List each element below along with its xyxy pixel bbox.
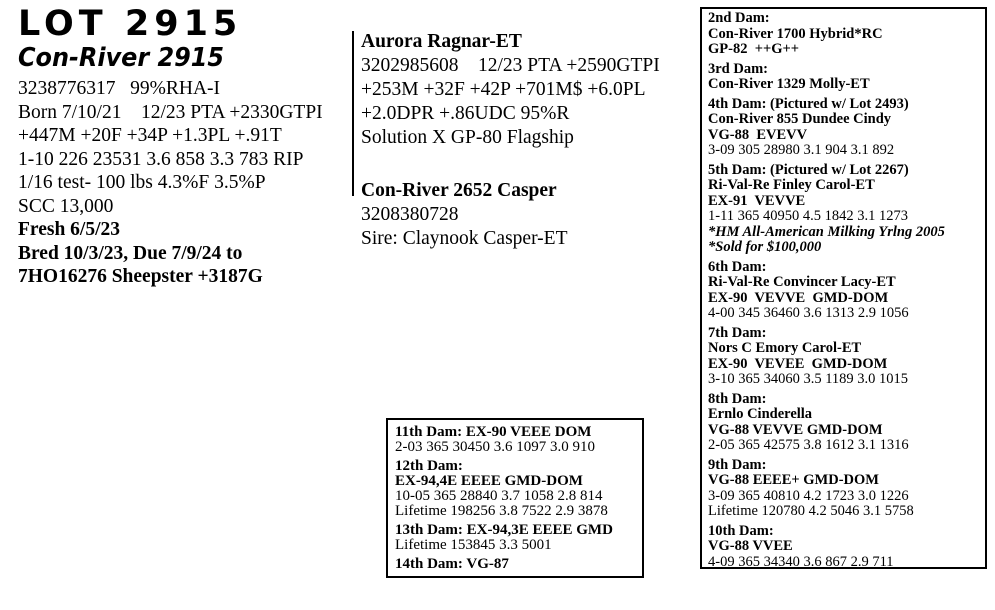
dam-score: VG-88 VEVVE GMD-DOM [708, 423, 979, 439]
dam-entry-14th: 14th Dam: VG-87 [395, 557, 635, 572]
dam-name: Con-River 1700 Hybrid*RC [708, 27, 979, 43]
dam-name: Con-River 2652 Casper [361, 179, 691, 203]
sire-pedigree-line: Solution X GP-80 Flagship [361, 126, 691, 150]
sire-fitness-line: +2.0DPR +.86UDC 95%R [361, 102, 691, 126]
dam-lifetime: Lifetime 153845 3.3 5001 [395, 538, 635, 553]
registration-line: 3238776317 99%RHA-I [18, 77, 353, 101]
extended-maternal-box: 11th Dam: EX-90 VEEE DOM 2-03 365 30450 … [386, 418, 644, 578]
sire-name: Aurora Ragnar-ET [361, 30, 691, 54]
dam-heading: 12th Dam: [395, 459, 635, 474]
dam-record: 4-00 345 36460 3.6 1313 2.9 1056 [708, 306, 979, 322]
dam-score: EX-94,4E EEEE GMD-DOM [395, 474, 635, 489]
dam-heading: 2nd Dam: [708, 11, 979, 27]
dam-name: Ernlo Cinderella [708, 407, 979, 423]
dam-name: Nors C Emory Carol-ET [708, 341, 979, 357]
dam-record: 3-10 365 34060 3.5 1189 3.0 1015 [708, 372, 979, 388]
sire-registration-pta-line: 3202985608 12/23 PTA +2590GTPI [361, 54, 691, 78]
pedigree-section: Aurora Ragnar-ET 3202985608 12/23 PTA +2… [361, 30, 691, 251]
dam-block: Con-River 2652 Casper 3208380728 Sire: C… [361, 179, 691, 251]
dam-name: Con-River 1329 Molly-ET [708, 77, 979, 93]
dam-score: EX-90 VEVVE GMD-DOM [708, 291, 979, 307]
pedigree-rule [352, 31, 354, 196]
dam-heading: 13th Dam: EX-94,3E EEEE GMD [395, 523, 635, 538]
dam-record: 1-11 365 40950 4.5 1842 3.1 1273 [708, 209, 979, 225]
sire-components-line: +253M +32F +42P +701M$ +6.0PL [361, 78, 691, 102]
dam-name: Ri-Val-Re Convincer Lacy-ET [708, 275, 979, 291]
dam-record: 3-09 305 28980 3.1 904 3.1 892 [708, 143, 979, 159]
dam-entry-3rd: 3rd Dam: Con-River 1329 Molly-ET [708, 62, 979, 93]
dam-lifetime: Lifetime 120780 4.2 5046 3.1 5758 [708, 504, 979, 520]
lactation-record-line: 1-10 226 23531 3.6 858 3.3 783 RIP [18, 148, 353, 172]
dam-heading: 8th Dam: [708, 392, 979, 408]
animal-details: 3238776317 99%RHA-I Born 7/10/21 12/23 P… [18, 77, 353, 289]
dam-score: EX-90 VEVEE GMD-DOM [708, 357, 979, 373]
dam-entry-9th: 9th Dam: VG-88 EEEE+ GMD-DOM 3-09 365 40… [708, 458, 979, 520]
dam-sire-line: Sire: Claynook Casper-ET [361, 227, 691, 251]
dam-entry-11th: 11th Dam: EX-90 VEEE DOM 2-03 365 30450 … [395, 425, 635, 455]
dam-lifetime: Lifetime 198256 3.8 7522 2.9 3878 [395, 504, 635, 519]
dam-entry-5th: 5th Dam: (Pictured w/ Lot 2267) Ri-Val-R… [708, 163, 979, 256]
dam-entry-2nd: 2nd Dam: Con-River 1700 Hybrid*RC GP-82 … [708, 11, 979, 58]
dam-score: GP-82 ++G++ [708, 42, 979, 58]
dam-entry-8th: 8th Dam: Ernlo Cinderella VG-88 VEVVE GM… [708, 392, 979, 454]
dam-entry-7th: 7th Dam: Nors C Emory Carol-ET EX-90 VEV… [708, 326, 979, 388]
dam-name: Ri-Val-Re Finley Carol-ET [708, 178, 979, 194]
dam-record: 2-03 365 30450 3.6 1097 3.0 910 [395, 440, 635, 455]
dam-score: EX-91 VEVVE [708, 194, 979, 210]
dam-entry-4th: 4th Dam: (Pictured w/ Lot 2493) Con-Rive… [708, 97, 979, 159]
dam-record: 2-05 365 42575 3.8 1612 3.1 1316 [708, 438, 979, 454]
test-day-line: 1/16 test- 100 lbs 4.3%F 3.5%P [18, 171, 353, 195]
dam-entry-6th: 6th Dam: Ri-Val-Re Convincer Lacy-ET EX-… [708, 260, 979, 322]
dam-record: 4-09 365 34340 3.6 867 2.9 711 [708, 555, 979, 570]
dam-score: VG-88 EEEE+ GMD-DOM [708, 473, 979, 489]
dam-heading: 5th Dam: (Pictured w/ Lot 2267) [708, 163, 979, 179]
service-sire-line: 7HO16276 Sheepster +3187G [18, 265, 353, 289]
dam-score: VG-88 VVEE [708, 539, 979, 555]
dam-heading: 6th Dam: [708, 260, 979, 276]
dam-sale-note: *Sold for $100,000 [708, 240, 979, 256]
dam-entry-13th: 13th Dam: EX-94,3E EEEE GMD Lifetime 153… [395, 523, 635, 553]
sale-catalog-page: LOT 2915 Con-River 2915 3238776317 99%RH… [0, 0, 995, 610]
dam-heading: 10th Dam: [708, 524, 979, 540]
dam-award-note: *HM All-American Milking Yrlng 2005 [708, 225, 979, 241]
maternal-line-box: 2nd Dam: Con-River 1700 Hybrid*RC GP-82 … [700, 7, 987, 569]
bred-due-line: Bred 10/3/23, Due 7/9/24 to [18, 242, 353, 266]
dam-record: 3-09 365 40810 4.2 1723 3.0 1226 [708, 489, 979, 505]
dam-heading: 4th Dam: (Pictured w/ Lot 2493) [708, 97, 979, 113]
dam-heading: 7th Dam: [708, 326, 979, 342]
dam-record: 10-05 365 28840 3.7 1058 2.8 814 [395, 489, 635, 504]
dam-heading: 14th Dam: VG-87 [395, 557, 635, 572]
dam-entry-12th: 12th Dam: EX-94,4E EEEE GMD-DOM 10-05 36… [395, 459, 635, 519]
dam-registration-line: 3208380728 [361, 203, 691, 227]
scc-line: SCC 13,000 [18, 195, 353, 219]
dam-score: VG-88 EVEVV [708, 128, 979, 144]
dam-heading: 9th Dam: [708, 458, 979, 474]
dam-heading: 3rd Dam: [708, 62, 979, 78]
sire-block: Aurora Ragnar-ET 3202985608 12/23 PTA +2… [361, 30, 691, 150]
pta-components-line: +447M +20F +34P +1.3PL +.91T [18, 124, 353, 148]
born-pta-line: Born 7/10/21 12/23 PTA +2330GTPI [18, 101, 353, 125]
dam-heading: 11th Dam: EX-90 VEEE DOM [395, 425, 635, 440]
fresh-date-line: Fresh 6/5/23 [18, 218, 353, 242]
animal-name: Con-River 2915 [18, 44, 326, 72]
dam-entry-10th: 10th Dam: VG-88 VVEE 4-09 365 34340 3.6 … [708, 524, 979, 570]
lot-number-title: LOT 2915 [18, 5, 353, 43]
dam-name: Con-River 855 Dundee Cindy [708, 112, 979, 128]
lot-section: LOT 2915 Con-River 2915 3238776317 99%RH… [18, 5, 353, 289]
